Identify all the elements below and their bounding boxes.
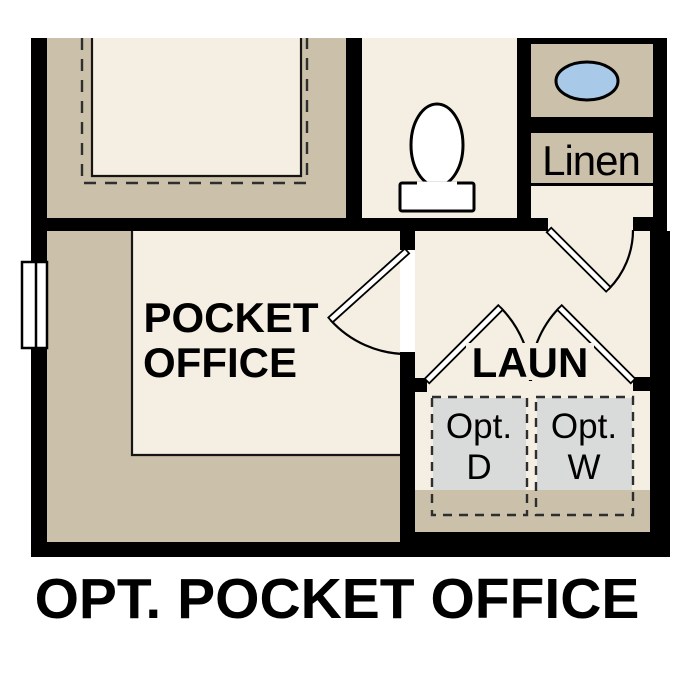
counter-top-wall <box>517 38 667 44</box>
wall-under-counter <box>531 117 667 133</box>
opt-dryer-label-line1: Opt. <box>446 407 512 446</box>
horizontal-wall <box>31 218 548 231</box>
pocket-office-label-line2: OFFICE <box>143 339 297 386</box>
pocket-office-label-line1: POCKET <box>143 294 318 341</box>
sink-icon <box>556 62 618 100</box>
bottom-wall-right <box>415 532 670 557</box>
wall-between-rooms <box>346 38 362 218</box>
linen-label: Linen <box>542 137 640 184</box>
toilet-right-wall <box>517 38 531 231</box>
center-wall-lower <box>400 352 415 542</box>
center-wall-stub <box>400 231 415 250</box>
window <box>22 262 47 348</box>
laundry-counter-strip <box>415 490 650 532</box>
bottom-wall-left <box>31 542 415 557</box>
laundry-label: LAUN <box>472 339 589 386</box>
nook-right-foot <box>633 217 667 231</box>
floor-plan: POCKET OFFICE LAUN Linen Opt. D Opt. W O… <box>0 0 687 687</box>
right-wall-lower <box>650 231 670 557</box>
opt-dryer-label-line2: D <box>466 448 491 487</box>
right-wall-upper <box>653 38 667 218</box>
plan-title: OPT. POCKET OFFICE <box>35 567 640 631</box>
opt-washer-label-line1: Opt. <box>551 407 617 446</box>
top-left-room-inset <box>91 38 302 177</box>
opt-washer-label-line2: W <box>567 448 600 487</box>
